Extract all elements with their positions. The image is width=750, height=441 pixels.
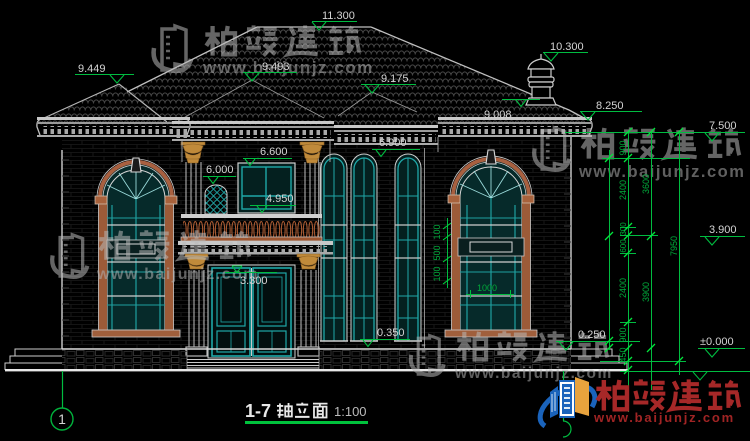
svg-text:100: 100 bbox=[432, 266, 442, 281]
svg-text:www.baijunjz.com: www.baijunjz.com bbox=[454, 365, 613, 382]
svg-text:6.000: 6.000 bbox=[206, 164, 234, 176]
svg-text:9.493: 9.493 bbox=[262, 61, 290, 73]
svg-text:1: 1 bbox=[58, 411, 66, 427]
svg-text:450: 450 bbox=[618, 347, 628, 362]
svg-text:8.250: 8.250 bbox=[596, 100, 624, 112]
svg-text:9.008: 9.008 bbox=[484, 109, 512, 121]
svg-text:2400: 2400 bbox=[618, 180, 628, 200]
svg-text:900: 900 bbox=[618, 140, 628, 155]
svg-text:3.300: 3.300 bbox=[240, 275, 268, 287]
svg-text:7950: 7950 bbox=[669, 236, 679, 256]
svg-text:600: 600 bbox=[619, 239, 628, 253]
svg-text:1-7: 1-7 bbox=[245, 401, 271, 421]
svg-text:0.250: 0.250 bbox=[578, 329, 606, 341]
svg-text:3.900: 3.900 bbox=[709, 224, 737, 236]
svg-text:1:100: 1:100 bbox=[334, 404, 367, 419]
svg-text:11.300: 11.300 bbox=[322, 10, 355, 22]
svg-text:0.350: 0.350 bbox=[377, 327, 405, 339]
svg-text:500: 500 bbox=[432, 245, 442, 260]
svg-text:±0.000: ±0.000 bbox=[700, 336, 734, 348]
svg-text:9.175: 9.175 bbox=[381, 73, 409, 85]
svg-text:6.900: 6.900 bbox=[379, 137, 407, 149]
svg-text:900: 900 bbox=[618, 327, 628, 342]
svg-text:300: 300 bbox=[619, 222, 628, 236]
svg-text:6.600: 6.600 bbox=[260, 146, 288, 158]
svg-text:10.300: 10.300 bbox=[550, 41, 584, 53]
svg-text:www.baijunjz.com: www.baijunjz.com bbox=[593, 410, 735, 425]
svg-text:3900: 3900 bbox=[641, 282, 651, 302]
svg-text:9.449: 9.449 bbox=[78, 63, 106, 75]
svg-text:4.950: 4.950 bbox=[266, 193, 294, 205]
svg-text:100: 100 bbox=[432, 224, 442, 239]
svg-text:2400: 2400 bbox=[618, 278, 628, 298]
svg-text:1000: 1000 bbox=[477, 283, 497, 293]
svg-text:3600: 3600 bbox=[641, 174, 651, 194]
svg-text:www.baijunjz.com: www.baijunjz.com bbox=[578, 163, 745, 181]
svg-text:7.500: 7.500 bbox=[709, 120, 737, 132]
